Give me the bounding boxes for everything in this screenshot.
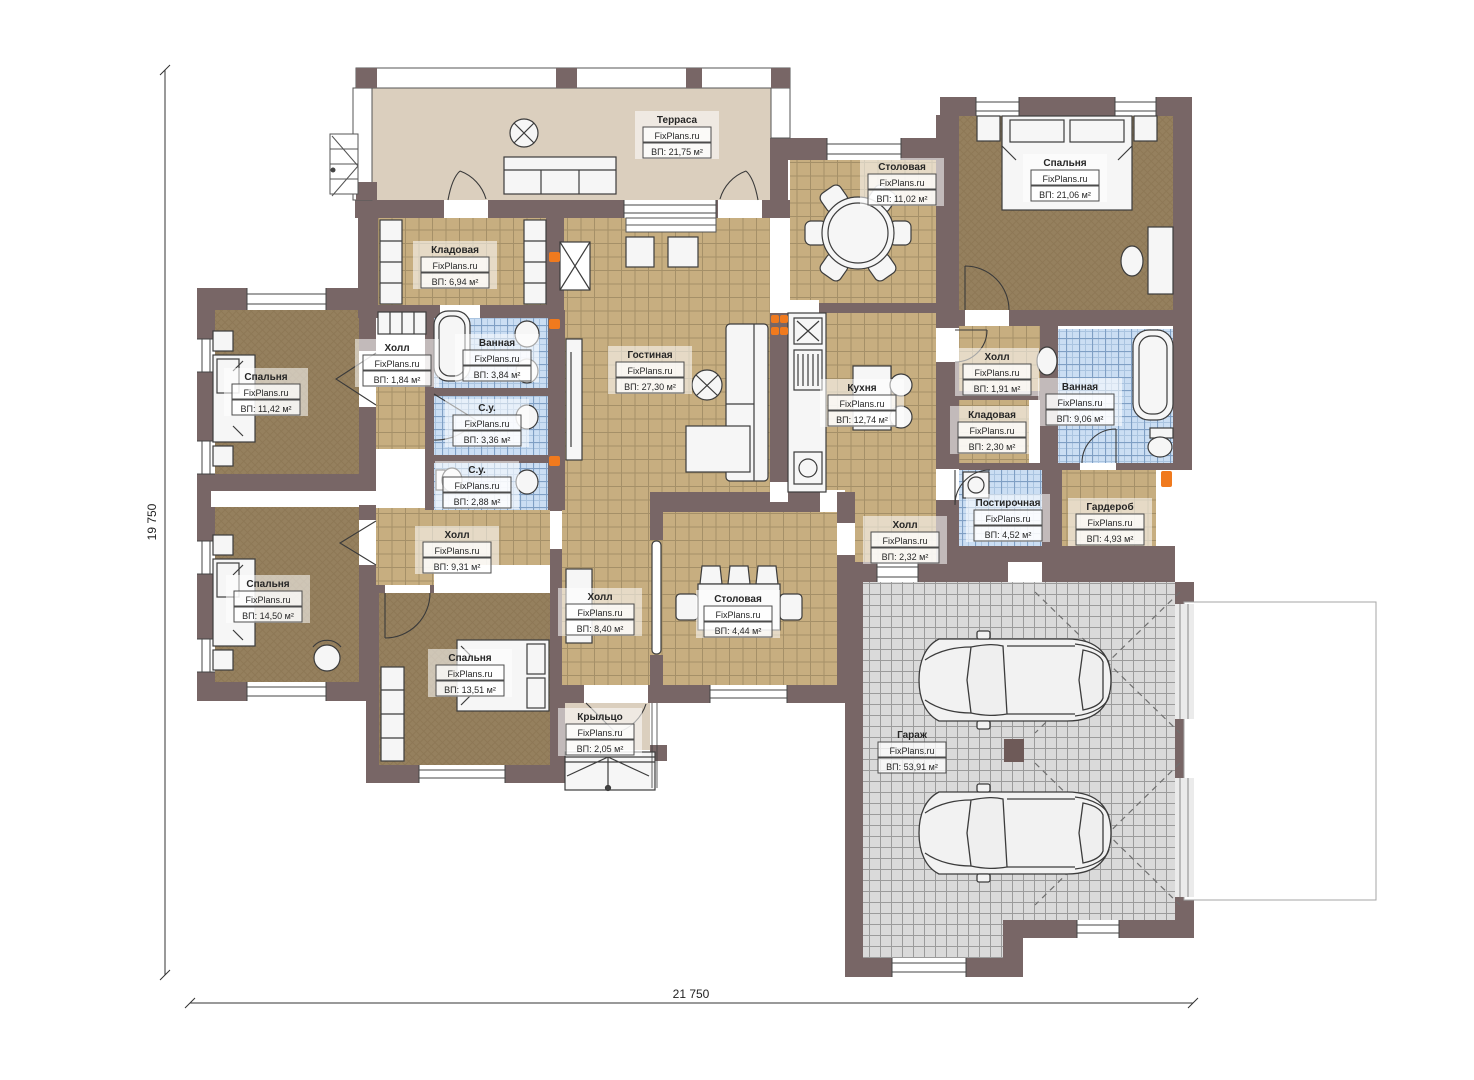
svg-text:FixPlans.ru: FixPlans.ru bbox=[627, 366, 672, 376]
svg-text:ВП: 14,50 м²: ВП: 14,50 м² bbox=[242, 611, 294, 621]
svg-text:ВП: 2,30 м²: ВП: 2,30 м² bbox=[969, 442, 1016, 452]
svg-text:ВП: 4,44 м²: ВП: 4,44 м² bbox=[715, 626, 762, 636]
svg-text:FixPlans.ru: FixPlans.ru bbox=[454, 481, 499, 491]
svg-text:ВП: 4,93 м²: ВП: 4,93 м² bbox=[1087, 534, 1134, 544]
svg-text:ВП: 2,05 м²: ВП: 2,05 м² bbox=[577, 744, 624, 754]
svg-text:ВП: 12,74 м²: ВП: 12,74 м² bbox=[836, 415, 888, 425]
svg-text:FixPlans.ru: FixPlans.ru bbox=[464, 419, 509, 429]
svg-text:ВП: 4,52 м²: ВП: 4,52 м² bbox=[985, 530, 1032, 540]
svg-text:Крыльцо: Крыльцо bbox=[577, 712, 623, 723]
svg-text:ВП: 11,42 м²: ВП: 11,42 м² bbox=[240, 404, 291, 414]
svg-text:FixPlans.ru: FixPlans.ru bbox=[374, 359, 419, 369]
svg-text:FixPlans.ru: FixPlans.ru bbox=[577, 608, 622, 618]
svg-text:Холл: Холл bbox=[984, 352, 1009, 363]
svg-text:Холл: Холл bbox=[892, 520, 917, 531]
svg-text:Спальня: Спальня bbox=[246, 579, 289, 590]
svg-text:ВП: 2,32 м²: ВП: 2,32 м² bbox=[882, 552, 929, 562]
svg-text:FixPlans.ru: FixPlans.ru bbox=[243, 388, 288, 398]
svg-text:FixPlans.ru: FixPlans.ru bbox=[447, 669, 492, 679]
svg-text:FixPlans.ru: FixPlans.ru bbox=[577, 728, 622, 738]
svg-text:Кладовая: Кладовая bbox=[968, 410, 1016, 421]
svg-text:Столовая: Столовая bbox=[878, 162, 926, 173]
svg-text:С.у.: С.у. bbox=[468, 465, 486, 476]
svg-text:С.у.: С.у. bbox=[478, 403, 496, 414]
svg-text:Гардероб: Гардероб bbox=[1086, 501, 1133, 513]
svg-text:Гостиная: Гостиная bbox=[627, 350, 672, 361]
svg-text:FixPlans.ru: FixPlans.ru bbox=[245, 595, 290, 605]
svg-text:Кладовая: Кладовая bbox=[431, 245, 479, 256]
svg-text:ВП: 11,02 м²: ВП: 11,02 м² bbox=[876, 194, 927, 204]
svg-text:FixPlans.ru: FixPlans.ru bbox=[654, 131, 699, 141]
svg-text:ВП: 1,91 м²: ВП: 1,91 м² bbox=[974, 384, 1021, 394]
svg-text:ВП: 1,84 м²: ВП: 1,84 м² bbox=[374, 375, 421, 385]
svg-text:ВП: 27,30 м²: ВП: 27,30 м² bbox=[624, 382, 676, 392]
svg-text:ВП: 21,06 м²: ВП: 21,06 м² bbox=[1039, 190, 1091, 200]
svg-text:FixPlans.ru: FixPlans.ru bbox=[839, 399, 884, 409]
svg-text:ВП: 3,36 м²: ВП: 3,36 м² bbox=[464, 435, 511, 445]
svg-text:Ванная: Ванная bbox=[1062, 382, 1098, 393]
svg-text:FixPlans.ru: FixPlans.ru bbox=[434, 546, 479, 556]
svg-text:ВП: 21,75 м²: ВП: 21,75 м² bbox=[651, 147, 703, 157]
svg-text:Гараж: Гараж bbox=[897, 730, 928, 741]
svg-text:21 750: 21 750 bbox=[673, 987, 710, 1001]
svg-text:FixPlans.ru: FixPlans.ru bbox=[432, 261, 477, 271]
svg-text:FixPlans.ru: FixPlans.ru bbox=[879, 178, 924, 188]
svg-text:FixPlans.ru: FixPlans.ru bbox=[969, 426, 1014, 436]
svg-text:ВП: 9,31 м²: ВП: 9,31 м² bbox=[434, 562, 481, 572]
svg-text:ВП: 13,51 м²: ВП: 13,51 м² bbox=[444, 685, 496, 695]
svg-text:FixPlans.ru: FixPlans.ru bbox=[889, 746, 934, 756]
svg-text:FixPlans.ru: FixPlans.ru bbox=[715, 610, 760, 620]
svg-text:ВП: 6,94 м²: ВП: 6,94 м² bbox=[432, 277, 479, 287]
svg-text:Холл: Холл bbox=[587, 592, 612, 603]
svg-text:ВП: 9,06 м²: ВП: 9,06 м² bbox=[1057, 414, 1104, 424]
svg-text:FixPlans.ru: FixPlans.ru bbox=[1087, 518, 1132, 528]
svg-text:Ванная: Ванная bbox=[479, 338, 515, 349]
svg-text:Терраса: Терраса bbox=[657, 115, 698, 126]
svg-text:19 750: 19 750 bbox=[145, 503, 159, 540]
svg-text:FixPlans.ru: FixPlans.ru bbox=[974, 368, 1019, 378]
svg-text:FixPlans.ru: FixPlans.ru bbox=[474, 354, 519, 364]
svg-text:FixPlans.ru: FixPlans.ru bbox=[1057, 398, 1102, 408]
svg-text:Спальня: Спальня bbox=[448, 653, 491, 664]
svg-text:Кухня: Кухня bbox=[847, 383, 876, 394]
svg-text:Спальня: Спальня bbox=[1043, 158, 1086, 169]
svg-text:FixPlans.ru: FixPlans.ru bbox=[1042, 174, 1087, 184]
svg-text:Постирочная: Постирочная bbox=[976, 498, 1041, 509]
svg-text:Столовая: Столовая bbox=[714, 594, 762, 605]
svg-text:ВП: 2,88 м²: ВП: 2,88 м² bbox=[454, 497, 501, 507]
svg-text:Холл: Холл bbox=[384, 343, 409, 354]
svg-text:ВП: 8,40 м²: ВП: 8,40 м² bbox=[577, 624, 624, 634]
svg-text:ВП: 3,84 м²: ВП: 3,84 м² bbox=[474, 370, 521, 380]
svg-text:Холл: Холл bbox=[444, 530, 469, 541]
svg-text:ВП: 53,91 м²: ВП: 53,91 м² bbox=[886, 762, 938, 772]
svg-text:Спальня: Спальня bbox=[244, 372, 287, 383]
svg-text:FixPlans.ru: FixPlans.ru bbox=[882, 536, 927, 546]
svg-text:FixPlans.ru: FixPlans.ru bbox=[985, 514, 1030, 524]
